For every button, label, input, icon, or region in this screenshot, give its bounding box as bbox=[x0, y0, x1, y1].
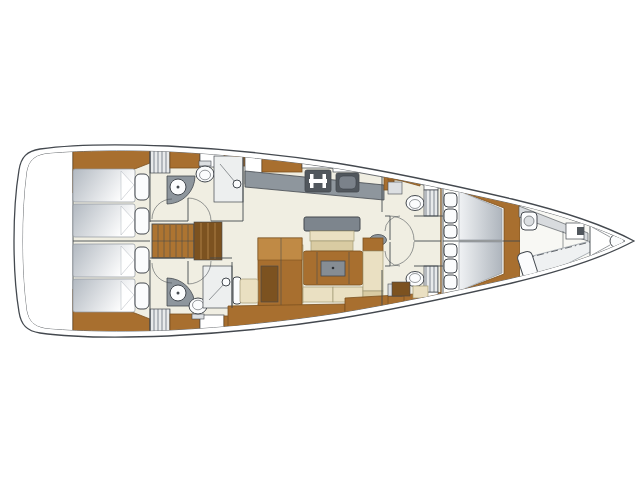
shower-stall bbox=[203, 266, 232, 308]
transom-area bbox=[20, 145, 73, 337]
counter bbox=[388, 182, 402, 194]
interior bbox=[20, 145, 634, 337]
seat-cushion bbox=[311, 241, 353, 251]
pillow bbox=[135, 247, 149, 273]
floorplan-canvas: Sailing yacht interior deck plan — top v… bbox=[0, 0, 640, 480]
shower-head bbox=[233, 180, 241, 188]
seat-pad bbox=[413, 286, 428, 298]
shower-stall bbox=[214, 156, 243, 202]
shower-head bbox=[222, 278, 230, 286]
aft-cabin-starboard bbox=[73, 241, 150, 336]
pillow bbox=[135, 283, 149, 309]
transom-platform bbox=[20, 145, 73, 337]
settee-cushion bbox=[363, 251, 383, 291]
drain bbox=[177, 292, 180, 295]
aft-cabin-port bbox=[73, 146, 150, 237]
fitting bbox=[577, 227, 584, 235]
chair-seat bbox=[240, 279, 258, 303]
seat-backrest bbox=[304, 217, 360, 231]
companionway-stairs bbox=[152, 222, 222, 260]
cabinet-door bbox=[261, 266, 278, 302]
table-fitting bbox=[332, 267, 335, 270]
pillow bbox=[135, 208, 149, 234]
basin-bowl bbox=[524, 216, 534, 226]
louvered-locker bbox=[424, 190, 438, 216]
seat-cushion bbox=[310, 231, 354, 241]
sink-basin bbox=[339, 176, 356, 189]
settee-armrest bbox=[363, 238, 383, 251]
wood-box bbox=[392, 282, 410, 296]
settee-cushion bbox=[303, 287, 333, 302]
toilet-tank bbox=[192, 314, 204, 319]
toilet-tank bbox=[199, 161, 211, 166]
drain bbox=[177, 186, 180, 189]
pillow bbox=[135, 174, 149, 200]
yacht-deck-plan: Sailing yacht interior deck plan — top v… bbox=[0, 0, 640, 480]
cabinet-top bbox=[258, 238, 302, 260]
